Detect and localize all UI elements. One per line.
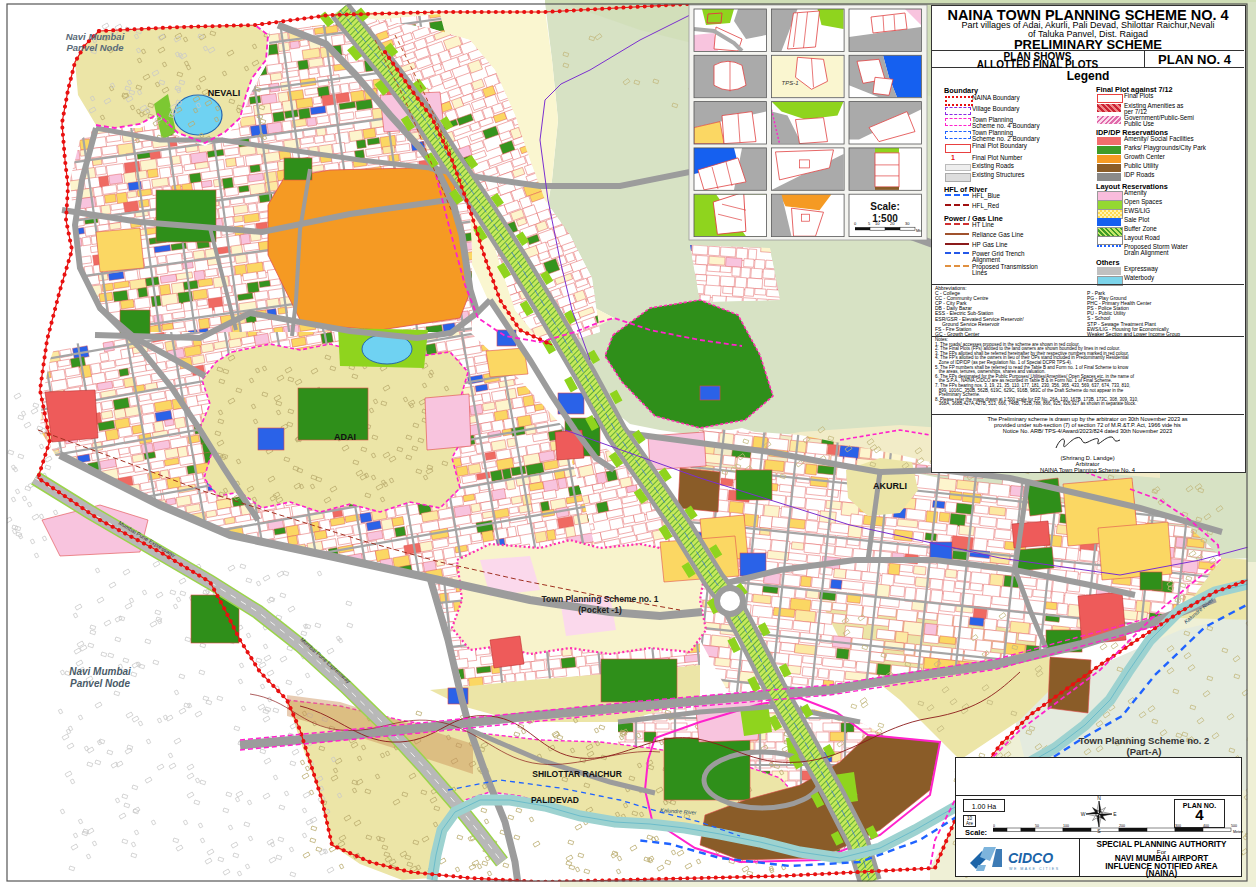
svg-text:CIDCO: CIDCO [1008,850,1053,866]
svg-text:ADAI: ADAI [334,432,356,442]
svg-text:(Part-A): (Part-A) [1127,746,1162,757]
svg-text:Panvel Node: Panvel Node [70,678,130,689]
svg-text:(Pocket -1): (Pocket -1) [578,605,622,615]
svg-text:AKURLI: AKURLI [873,481,907,491]
svg-text:E: E [1113,811,1117,817]
svg-text:Navi Mumbai: Navi Mumbai [66,31,125,42]
svg-text:S: S [1097,828,1101,834]
svg-text:Panvel Node: Panvel Node [66,42,124,53]
svg-text:20: 20 [890,221,895,226]
svg-text:TPS-1: TPS-1 [782,80,799,86]
svg-text:Town Planning Scheme no. 2: Town Planning Scheme no. 2 [1079,735,1210,746]
svg-text:500: 500 [1231,824,1237,828]
svg-text:N: N [1097,795,1101,801]
svg-text:Town Planning Scheme no. 1: Town Planning Scheme no. 1 [542,594,659,604]
svg-text:30: 30 [905,221,910,226]
svg-text:Meters: Meters [1233,830,1243,834]
svg-text:100: 100 [1063,824,1069,828]
svg-text:W: W [1081,811,1086,817]
svg-text:10: 10 [875,221,880,226]
svg-text:NEVALI: NEVALI [208,88,240,98]
svg-text:WE MAKE CITIES: WE MAKE CITIES [1009,867,1060,871]
svg-text:50: 50 [1035,824,1039,828]
svg-text:Scale:: Scale: [870,201,899,212]
svg-text:SHILOTTAR RAICHUR: SHILOTTAR RAICHUR [532,769,622,779]
svg-text:Navi Mumbai: Navi Mumbai [69,666,131,677]
svg-text:0: 0 [993,824,995,828]
svg-text:200: 200 [1119,824,1125,828]
svg-text:PALIDEVAD: PALIDEVAD [531,795,579,805]
